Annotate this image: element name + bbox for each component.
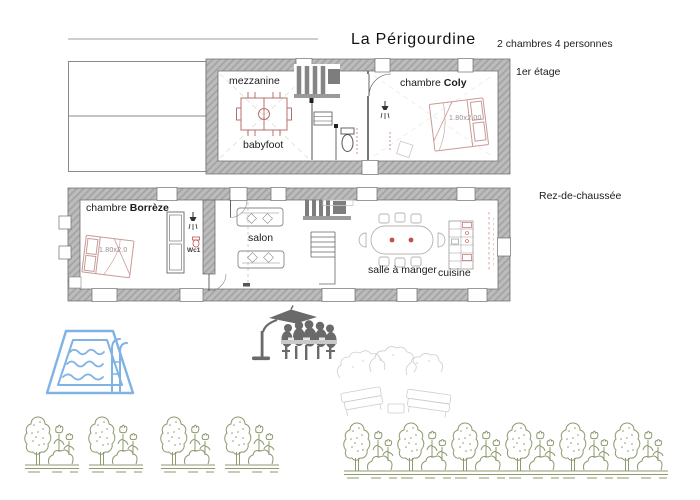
garden-furniture-sketch-icon xyxy=(337,347,451,418)
tree-bush-tulips-icon xyxy=(560,423,614,478)
salon-label: salon xyxy=(248,232,273,244)
chambre-name: Coly xyxy=(444,77,467,89)
chambre-prefix: chambre xyxy=(86,202,130,214)
wc-label: Wc1 xyxy=(187,247,200,254)
entrance-door xyxy=(231,200,248,218)
shower-icon xyxy=(381,101,389,119)
tree-bush-tulips-icon xyxy=(398,423,452,478)
chambre-borreze-label: chambre Borrèze xyxy=(86,202,169,214)
babyfoot-label: babyfoot xyxy=(243,139,283,151)
interior-wall xyxy=(203,200,215,274)
pool-icon xyxy=(47,331,133,393)
dining-table xyxy=(359,213,445,267)
coly-bed-size: 1.80x2.00 xyxy=(449,115,482,123)
chair-sketch xyxy=(396,141,412,157)
mezzanine-label: mezzanine xyxy=(229,75,280,87)
page-subtitle: 2 chambres 4 personnes xyxy=(497,38,613,50)
closet xyxy=(167,212,184,273)
babyfoot-table xyxy=(237,92,292,136)
toilet-icon xyxy=(341,128,354,152)
tree-bush-tulips-icon xyxy=(614,423,668,478)
first-floor-stairs xyxy=(294,64,340,98)
ground-floor-stairs xyxy=(303,200,351,284)
garden-row-left xyxy=(25,417,279,472)
chambre-name: Borrèze xyxy=(130,202,169,214)
floorplan-page: La Périgourdine 2 chambres 4 personnes 1… xyxy=(0,0,700,500)
tree-bush-tulips-icon xyxy=(344,423,398,478)
garden-row-right xyxy=(344,423,668,478)
coly-bed xyxy=(429,98,488,151)
tree-bush-tulips-icon xyxy=(161,417,215,472)
umbrella-dining-silhouette-icon xyxy=(252,306,337,361)
kitchen-label: cuisine xyxy=(438,267,471,279)
ground-floor-label: Rez-de-chaussée xyxy=(539,190,621,202)
page-title: La Périgourdine xyxy=(351,31,476,49)
chambre-coly-label: chambre Coly xyxy=(400,77,467,89)
sink-icon xyxy=(314,112,332,125)
tree-bush-tulips-icon xyxy=(452,423,506,478)
first-floor-plan xyxy=(69,59,511,175)
chambre-prefix: chambre xyxy=(400,77,444,89)
borreze-bed-size: 1.80x2.0 xyxy=(99,247,127,255)
tree-bush-tulips-icon xyxy=(225,417,279,472)
borreze-bed xyxy=(82,235,134,278)
tree-bush-tulips-icon xyxy=(89,417,143,472)
first-floor-label: 1er étage xyxy=(516,66,560,78)
tree-bush-tulips-icon xyxy=(25,417,79,472)
dining-label: salle à manger xyxy=(368,264,437,276)
wc-symbol xyxy=(193,237,200,247)
tree-bush-tulips-icon xyxy=(506,423,560,478)
shower-icon-ground xyxy=(189,212,197,230)
kitchen-counter xyxy=(449,221,473,269)
